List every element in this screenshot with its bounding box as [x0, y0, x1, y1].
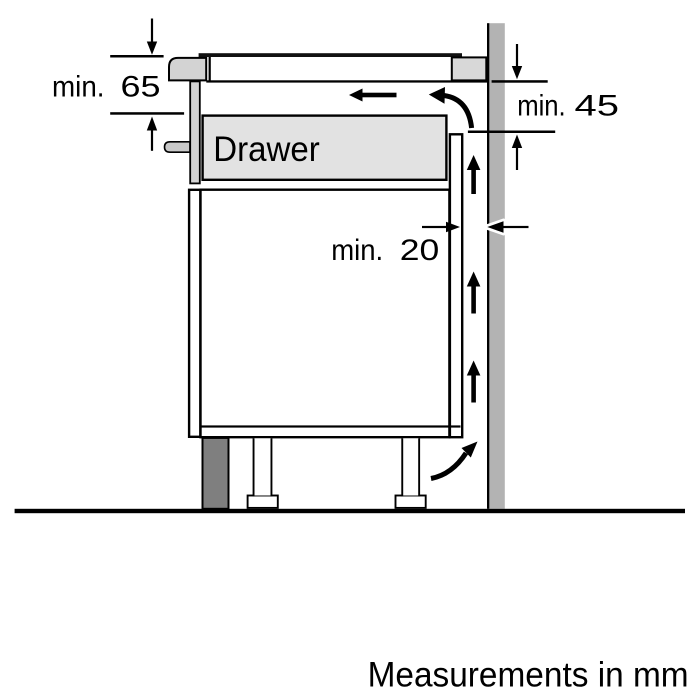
- svg-text:45: 45: [575, 90, 620, 123]
- svg-text:20: 20: [400, 234, 440, 267]
- svg-text:min.: min.: [52, 71, 105, 104]
- svg-text:Drawer: Drawer: [213, 130, 320, 169]
- svg-text:65: 65: [121, 71, 161, 104]
- svg-text:min.: min.: [331, 234, 383, 267]
- svg-text:Measurements in mm: Measurements in mm: [368, 656, 689, 695]
- svg-text:min.: min.: [517, 90, 566, 123]
